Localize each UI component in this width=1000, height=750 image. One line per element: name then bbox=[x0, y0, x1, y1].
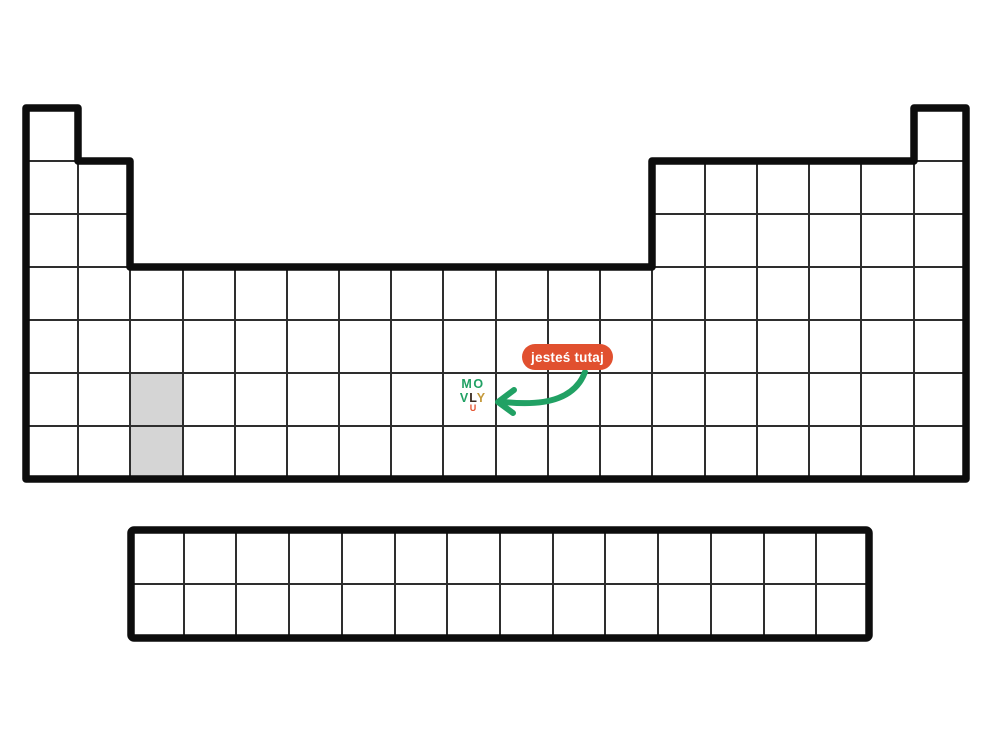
logo-letter-o: O bbox=[473, 377, 484, 391]
movly-logo-line1: MO bbox=[452, 378, 494, 391]
logo-smile-icon: U bbox=[452, 404, 494, 413]
logo-letter-m: M bbox=[461, 377, 473, 391]
arrow-curve-icon bbox=[504, 372, 585, 403]
you-are-here-badge: jesteś tutaj bbox=[522, 344, 613, 370]
placeholder-cell-row7 bbox=[130, 426, 183, 479]
logo-letter-v: V bbox=[460, 391, 469, 405]
f-block-grid-lines bbox=[133, 532, 867, 636]
you-are-here-arrow bbox=[498, 372, 585, 413]
placeholder-cell-row6 bbox=[130, 373, 183, 426]
periodic-table-graphic bbox=[0, 0, 1000, 750]
periodic-table-page: jesteś tutaj MO VLY U bbox=[0, 0, 1000, 750]
f-block-table bbox=[131, 530, 869, 638]
logo-letter-y: Y bbox=[477, 391, 486, 405]
movly-logo: MO VLY U bbox=[452, 378, 494, 413]
